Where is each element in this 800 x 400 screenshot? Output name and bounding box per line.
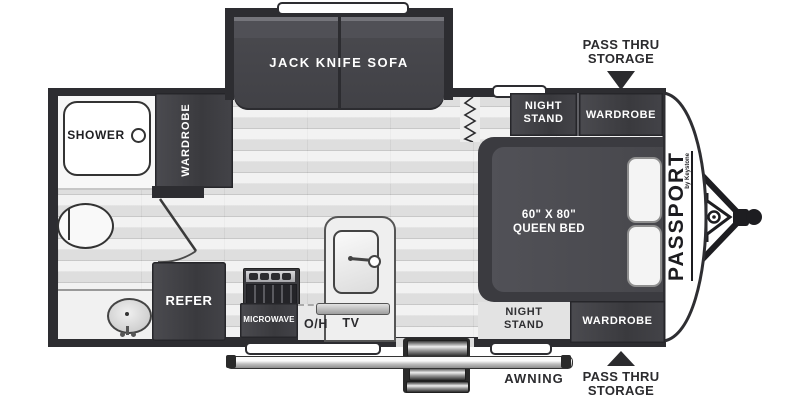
pass-thru-top-line2: STORAGE [570,52,672,66]
pass-thru-bottom-line2: STORAGE [570,384,672,398]
bath-faucet [126,326,129,335]
night-stand-bottom-line2: STAND [478,319,570,332]
shower-drain [131,128,146,143]
night-stand-top-line1: NIGHT [510,100,577,113]
slideout-window [277,2,409,15]
awning-tube [226,356,573,369]
wardrobe-bottom-right-label: WARDROBE [570,315,665,327]
toilet [57,203,114,249]
night-stand-top-line2: STAND [510,113,577,126]
awning-end-cap-left [226,355,236,368]
burner-3 [271,273,280,280]
tv-label: TV [338,316,364,330]
brand-logo: PASSPORT by Keystone [665,151,693,281]
tv-unit [316,303,390,315]
pass-thru-top-arrow-icon [607,71,635,90]
pass-thru-top-label: PASS THRU STORAGE [570,38,672,66]
bed-type-line: QUEEN BED [493,223,605,237]
bath-sink [107,298,152,334]
overhead-label: O/H [300,317,332,331]
entry-step-3 [406,381,469,393]
entry-step-2 [409,367,466,381]
bath-faucet-handle-right [131,332,136,337]
pass-thru-bottom-arrow-icon [607,351,635,366]
pass-thru-bottom-label: PASS THRU STORAGE [570,370,672,398]
entry-step-1 [407,340,468,357]
bed-pillow-bottom [627,225,662,287]
toilet-seat-line [68,208,70,240]
burner-2 [260,273,269,280]
bed-pillow-top [627,157,662,223]
burner-4 [282,273,291,280]
bed-label: 60" X 80" QUEEN BED [493,209,605,236]
night-stand-bottom-line1: NIGHT [478,306,570,319]
pass-thru-bottom-line1: PASS THRU [570,370,672,384]
wall-rear [48,88,58,347]
night-stand-top-label: NIGHT STAND [510,100,577,126]
wardrobe-left [155,93,233,188]
pass-thru-top-line1: PASS THRU [570,38,672,52]
wardrobe-left-label: WARDROBE [178,95,194,185]
microwave-label: MICROWAVE [240,315,298,324]
range-grate [246,284,297,305]
slideout-wall-right [444,8,453,100]
floorplan-canvas: PASSPORT by Keystone SHOWER WARDROBE REF… [0,0,800,400]
slideout-wall-left [225,8,234,100]
sofa-label: JACK KNIFE SOFA [249,55,429,70]
curtain-zigzag-icon [460,97,480,142]
night-stand-bottom-label: NIGHT STAND [478,306,570,332]
brand-subtext: by Keystone [676,153,700,189]
bath-faucet-handle-left [120,332,125,337]
exterior-window-right [490,342,552,355]
awning-label: AWNING [495,371,573,386]
kitchen-faucet-ring [368,255,381,268]
awning-end-cap-right [561,355,571,368]
bed-size-line: 60" X 80" [493,209,605,223]
refrigerator-label: REFER [152,293,226,308]
bath-sink-drain [125,312,129,316]
exterior-window-left [245,342,381,355]
kitchen-faucet-base [348,256,353,261]
shower-label: SHOWER [64,128,128,144]
burner-1 [249,273,258,280]
wardrobe-top-right-label: WARDROBE [579,109,663,121]
